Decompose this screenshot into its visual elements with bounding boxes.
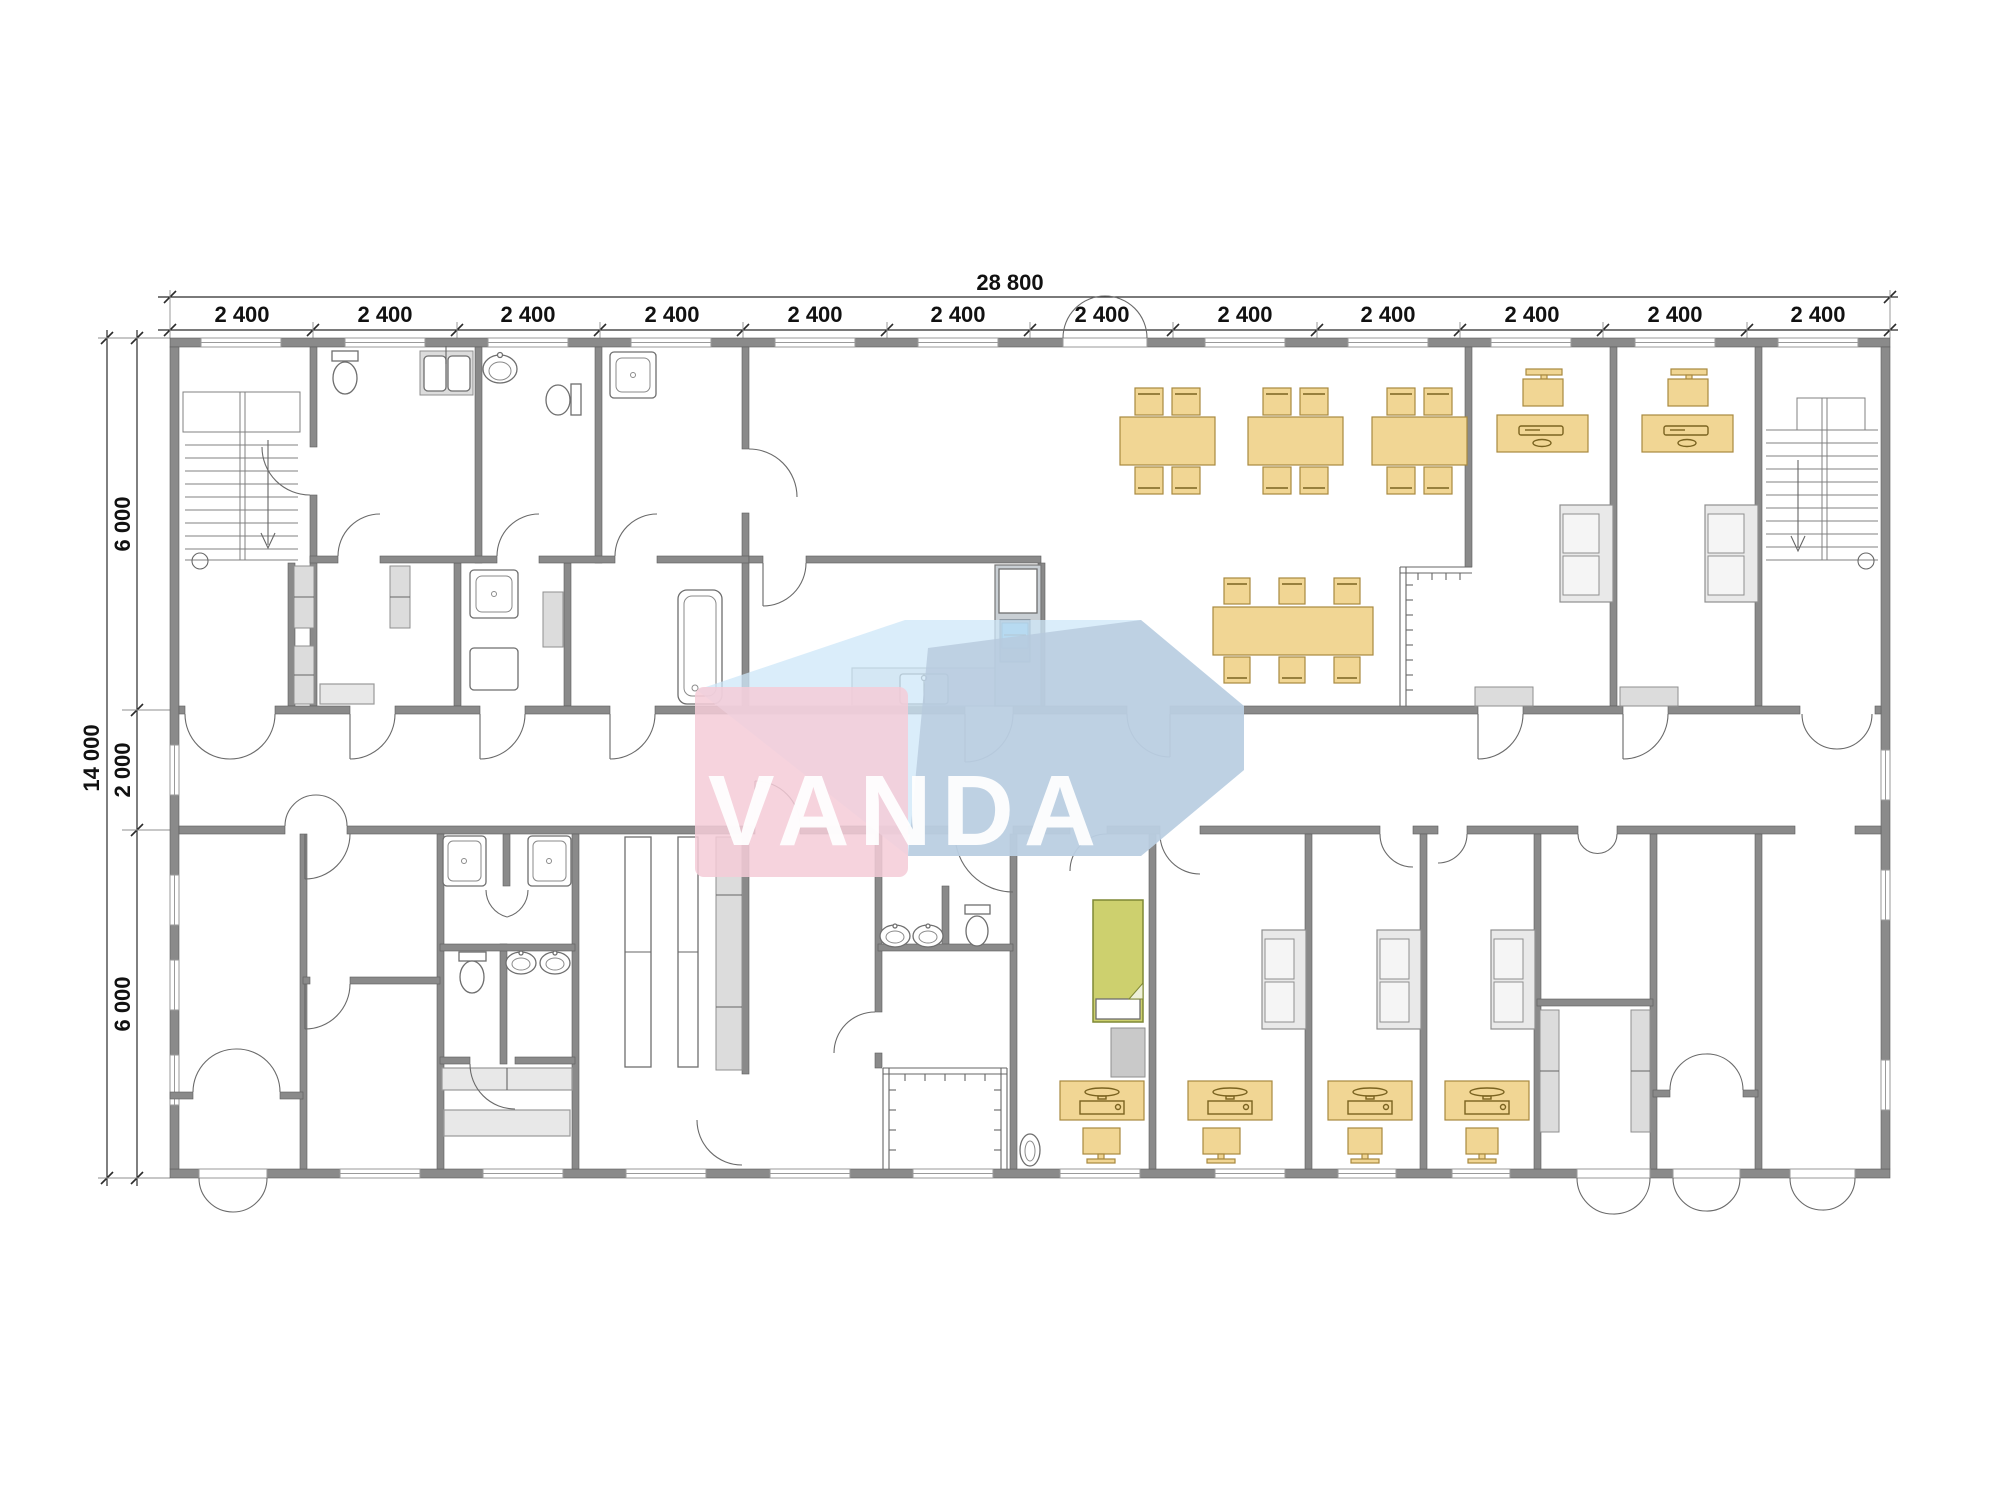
dimension-top: 28 800 2 400 2 400 2 400 2 400 2 400 2 4… [158, 270, 1898, 338]
tv-icon [1203, 1128, 1240, 1163]
dining-table-large [1213, 578, 1373, 683]
dim-bay: 2 400 [787, 302, 842, 327]
dimension-left: 14 000 6 000 2 000 6 000 [79, 330, 170, 1186]
desk-with-computer [1497, 415, 1588, 452]
dim-bay: 2 400 [1074, 302, 1129, 327]
corner-basin-icon [1020, 1134, 1040, 1166]
office-top-1 [1475, 369, 1613, 706]
shower-tray-icon [528, 836, 571, 886]
tv-icon [1523, 369, 1563, 406]
sofa [1705, 505, 1758, 602]
dim-bay: 2 400 [357, 302, 412, 327]
floor-plan-drawing: 28 800 2 400 2 400 2 400 2 400 2 400 2 4… [0, 0, 2000, 1500]
sink-icon [506, 951, 536, 974]
dim-bay: 2 400 [1360, 302, 1415, 327]
watermark-text: VANDA [708, 755, 1106, 867]
doormat [1475, 687, 1533, 706]
toilet-icon [332, 351, 358, 394]
dim-bay: 2 400 [644, 302, 699, 327]
sofa [1262, 930, 1306, 1029]
dim-bay: 2 400 [1217, 302, 1272, 327]
dining-table [1120, 388, 1215, 494]
washroom-top-2 [483, 353, 581, 416]
tv-icon [1668, 369, 1708, 406]
bed [1093, 900, 1143, 1022]
dining-table [1248, 388, 1343, 494]
desk-with-computer [1060, 1081, 1144, 1120]
bench [320, 684, 374, 704]
office-top-2 [1620, 369, 1758, 706]
staircase-right [1766, 398, 1878, 569]
fridge-icon [999, 569, 1037, 613]
toilet-icon [546, 384, 581, 415]
sink-icon [483, 353, 517, 384]
dim-bay: 2 400 [1504, 302, 1559, 327]
dim-total-height: 14 000 [79, 724, 104, 791]
dim-bay: 2 400 [500, 302, 555, 327]
shower-tray-icon [443, 836, 486, 886]
toilet-icon [459, 952, 486, 993]
staircase-left [183, 392, 300, 569]
desk-with-computer [1642, 415, 1733, 452]
bedroom-1 [1060, 900, 1145, 1163]
dining-table [1372, 388, 1467, 494]
dim-bay: 2 400 [214, 302, 269, 327]
tv-icon [1083, 1128, 1120, 1163]
sink-icon [913, 924, 943, 947]
tv-icon [1466, 1128, 1498, 1163]
shower-room-mid [470, 570, 563, 690]
dim-segment: 6 000 [110, 496, 135, 551]
vestibule-closets [1540, 1010, 1650, 1132]
toilet-icon [965, 905, 990, 946]
dim-bay: 2 400 [1647, 302, 1702, 327]
bedroom-4 [1445, 930, 1535, 1163]
desk-with-computer [1445, 1081, 1529, 1120]
sofa [1560, 505, 1613, 602]
bedroom-2 [1188, 930, 1306, 1163]
sink-icon [880, 924, 910, 947]
sink-icon [540, 951, 570, 974]
doormat [1620, 687, 1678, 706]
tv-icon [1348, 1128, 1382, 1163]
dim-bay: 2 400 [1790, 302, 1845, 327]
desk-with-computer [1188, 1081, 1272, 1120]
bedroom-3 [1328, 930, 1421, 1163]
sofa [1491, 930, 1535, 1029]
dim-segment: 6 000 [110, 976, 135, 1031]
nightstand [1111, 1028, 1145, 1077]
bench [442, 1068, 572, 1136]
desk-with-computer [1328, 1081, 1412, 1120]
dim-segment: 2 000 [110, 742, 135, 797]
dim-total-width: 28 800 [976, 270, 1043, 295]
ramp-passage [1400, 567, 1472, 706]
sofa [1377, 930, 1421, 1029]
ramp-passage [883, 1068, 1007, 1169]
double-sink-console [420, 346, 473, 395]
watermark: VANDA [695, 620, 1244, 877]
floor-plan-page: 28 800 2 400 2 400 2 400 2 400 2 400 2 4… [0, 0, 2000, 1500]
shower-room-top [610, 352, 656, 398]
washroom-top-1 [332, 346, 473, 395]
dim-bay: 2 400 [930, 302, 985, 327]
